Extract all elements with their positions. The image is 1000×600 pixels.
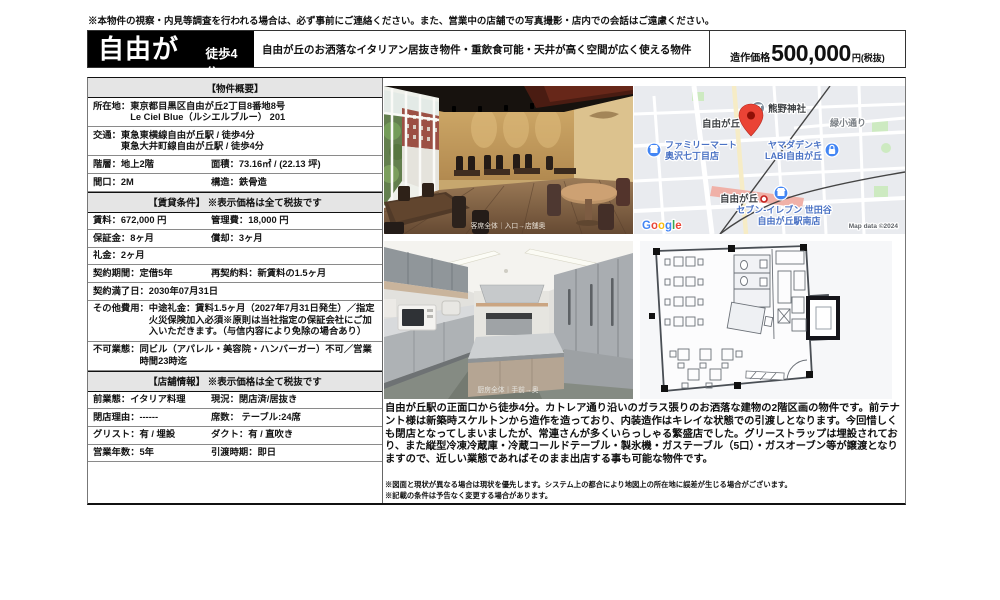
section-header-shop: 【店舗情報】 ※表示価格は全て税抜です [88, 371, 382, 392]
google-logo: Google [642, 220, 682, 232]
duct: ダクト：有 / 直吹き [211, 429, 377, 441]
station-title-box: 自由が丘 徒歩4分 [88, 31, 254, 67]
row-closing-reason: 閉店理由：------ 席数： テーブル:24席 [88, 409, 382, 427]
main-sheet: 【物件概要】 所在地： 東京都目黒区自由が丘2丁目8番地8号 Le Ciel B… [87, 77, 906, 505]
row-contract-end: 契約満了日：2030年07月31日 [88, 283, 382, 301]
floor-area: 面積：73.16㎡ / (22.13 坪) [211, 159, 377, 171]
access-label: 交通： [93, 130, 121, 153]
access-line1: 東急東横線自由が丘駅 / 徒歩4分 [121, 130, 377, 142]
contract-end-date: 契約満了日：2030年07月31日 [93, 286, 218, 298]
row-prohibited: 不可業態： 同ビル（アパレル・美容院・ハンバーガー）不可／営業時間23時迄 [88, 342, 382, 371]
handover-time: 引渡時期：即日 [211, 447, 377, 459]
closing-reason: 閉店理由：------ [93, 412, 211, 424]
prohibited-label: 不可業態： [93, 344, 140, 367]
row-floor-area: 階層：地上2階 面積：73.16㎡ / (22.13 坪) [88, 156, 382, 174]
row-access: 交通： 東急東横線自由が丘駅 / 徒歩4分 東急大井町線自由が丘駅 / 徒歩4分 [88, 127, 382, 156]
station-marker-icon [761, 196, 767, 202]
kitchen-photo-caption: 厨房全体｜手前→奥 [477, 385, 538, 394]
current-state: 現況：閉店済/居抜き [211, 394, 377, 406]
frontage: 間口：2M [93, 177, 211, 189]
plan-restrooms [734, 255, 770, 307]
top-disclaimer: ※本物件の視察・内見等調査を行われる場合は、必ず事前にご連絡ください。また、営業… [88, 13, 714, 27]
footnote-line: ※図面と現状が異なる場合は現状を優先します。システム上の都合により地図上の所在地… [385, 480, 792, 491]
business-years: 営業年数：5年 [93, 447, 211, 459]
section-header-overview: 【物件概要】 [88, 78, 382, 98]
row-grease-duct: グリスト：有 / 埋設 ダクト：有 / 直吹き [88, 427, 382, 445]
rice-cooker [442, 301, 460, 315]
map-label-yamada-1: ヤマダデンキ [768, 139, 822, 150]
row-key-money: 礼金：2ヶ月 [88, 248, 382, 266]
row-contract: 契約期間：定借5年 再契約料：新賃料の1.5ヶ月 [88, 265, 382, 283]
address-line1: 東京都目黒区自由が丘2丁目8番地8号 [130, 101, 377, 113]
row-previous-business: 前業態：イタリア料理 現況：閉店済/居抜き [88, 392, 382, 410]
floor-plan [634, 241, 905, 399]
row-other-costs: その他費用： 中途礼金：賃料1.5ヶ月（2027年7月31日発生）／指定火災保険… [88, 301, 382, 342]
map-label-shrine: 熊野神社 [768, 103, 807, 115]
plan-entry-hatch [746, 371, 784, 380]
management-fee: 管理費：18,000 円 [211, 215, 377, 227]
map-label-familymart-2: 奥沢七丁目店 [664, 150, 719, 161]
row-years-handover: 営業年数：5年 引渡時期：即日 [88, 445, 382, 463]
visual-area: 客席全体｜入口→店舗奥 [384, 78, 905, 503]
dining-room-photo: 客席全体｜入口→店舗奥 [384, 86, 633, 234]
section-header-lease: 【賃貸条件】 ※表示価格は全て税抜です [88, 192, 382, 213]
access-value: 東急東横線自由が丘駅 / 徒歩4分 東急大井町線自由が丘駅 / 徒歩4分 [121, 130, 377, 153]
price-box: 造作価格 500,000 円(税抜) [709, 31, 905, 67]
map-label-area: 自由が丘 [702, 118, 741, 130]
address-line2: Le Ciel Blue（ルシエルブルー） 201 [130, 112, 377, 124]
map-label-seveneleven-1: セブン-イレブン 世田谷 [736, 204, 832, 215]
key-money: 礼金：2ヶ月 [93, 250, 145, 262]
header-band: 自由が丘 徒歩4分 自由が丘のお洒落なイタリアン居抜き物件・重飲食可能・天井が高… [87, 30, 906, 68]
location-map: 自由が丘 熊野神社 緑小通り ファミリーマート 奥沢七丁目店 ヤマダデンキ LA… [634, 86, 905, 234]
map-label-yamada-2: LABI自由が丘 [765, 150, 822, 161]
price-value: 500,000 [771, 40, 851, 67]
yamada-poi-icon [825, 143, 839, 157]
range-hood [480, 285, 544, 303]
row-address: 所在地： 東京都目黒区自由が丘2丁目8番地8号 Le Ciel Blue（ルシエ… [88, 98, 382, 127]
row-frontage-structure: 間口：2M 構造：鉄骨造 [88, 174, 382, 192]
contract-term: 契約期間：定借5年 [93, 268, 211, 280]
map-label-street: 緑小通り [830, 117, 866, 128]
spec-table: 【物件概要】 所在地： 東京都目黒区自由が丘2丁目8番地8号 Le Ciel B… [88, 78, 383, 503]
other-costs-value: 中途礼金：賃料1.5ヶ月（2027年7月31日発生）／指定火災保険加入必須※原則… [149, 303, 377, 338]
catch-copy: 自由が丘のお洒落なイタリアン居抜き物件・重飲食可能・天井が高く空間が広く使える物… [254, 31, 709, 67]
floor-level: 階層：地上2階 [93, 159, 211, 171]
row-rent: 賃料：672,000 円 管理費：18,000 円 [88, 213, 382, 231]
deposit: 保証金：8ヶ月 [93, 233, 211, 245]
rent: 賃料：672,000 円 [93, 215, 211, 227]
row-deposit: 保証金：8ヶ月 償却：3ヶ月 [88, 230, 382, 248]
walk-time: 徒歩4分 [205, 43, 248, 81]
seveneleven-poi-icon [774, 186, 788, 200]
plan-elevator [808, 298, 838, 338]
map-copyright: Map data ©2024 [849, 222, 899, 230]
seats: 席数： テーブル:24席 [211, 412, 377, 424]
grease-trap: グリスト：有 / 埋設 [93, 429, 211, 441]
access-line2: 東急大井町線自由が丘駅 / 徒歩4分 [121, 141, 377, 153]
property-description: 自由が丘駅の正面口から徒歩4分。カトレア通り沿いのガラス張りのお洒落な建物の2階… [385, 403, 904, 467]
address-value: 東京都目黒区自由が丘2丁目8番地8号 Le Ciel Blue（ルシエルブルー）… [130, 101, 377, 124]
kitchen-photo: 厨房全体｜手前→奥 [384, 241, 633, 399]
structure: 構造：鉄骨造 [211, 177, 377, 189]
previous-business: 前業態：イタリア料理 [93, 394, 211, 406]
renewal-fee: 再契約料：新賃料の1.5ヶ月 [211, 268, 377, 280]
footnote-line: ※記載の条件は予告なく変更する場合があります。 [385, 491, 792, 502]
price-label: 造作価格 [730, 49, 770, 64]
price-unit: 円(税抜) [852, 51, 885, 64]
dining-photo-caption: 客席全体｜入口→店舗奥 [471, 221, 546, 230]
familymart-poi-icon [647, 143, 661, 157]
address-label: 所在地： [93, 101, 130, 124]
other-costs-label: その他費用： [93, 303, 149, 338]
map-label-seveneleven-2: 自由が丘駅南店 [757, 215, 820, 226]
gas-range [486, 319, 532, 335]
map-label-station: 自由が丘 [720, 193, 759, 205]
footnotes: ※図面と現状が異なる場合は現状を優先します。システム上の都合により地図上の所在地… [385, 480, 792, 501]
map-label-familymart-1: ファミリーマート [665, 140, 737, 150]
amortization: 償却：3ヶ月 [211, 233, 377, 245]
prohibited-value: 同ビル（アパレル・美容院・ハンバーガー）不可／営業時間23時迄 [140, 344, 378, 367]
